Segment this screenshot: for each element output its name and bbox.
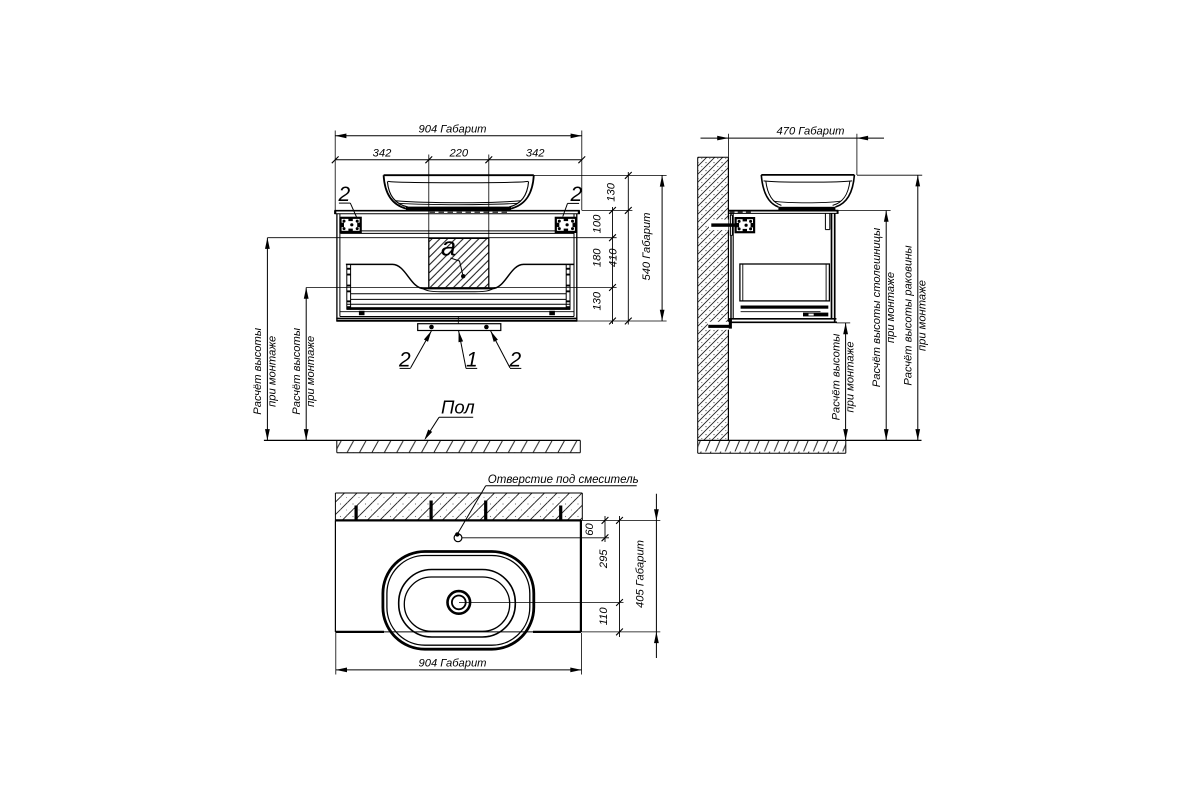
svg-text:Отверстие под смеситель: Отверстие под смеситель — [488, 474, 639, 486]
svg-text:904 Габарит: 904 Габарит — [419, 658, 487, 670]
svg-text:342: 342 — [373, 148, 392, 160]
svg-text:2: 2 — [509, 348, 522, 371]
svg-text:180: 180 — [592, 248, 604, 267]
svg-text:540 Габарит: 540 Габарит — [641, 213, 653, 281]
svg-text:904 Габарит: 904 Габарит — [419, 123, 487, 135]
svg-text:130: 130 — [592, 291, 604, 310]
svg-text:Расчёт высоты столешницы: Расчёт высоты столешницы — [871, 227, 883, 387]
svg-text:при монтаже: при монтаже — [917, 280, 929, 351]
svg-text:a: a — [441, 232, 456, 262]
svg-text:2: 2 — [337, 183, 350, 206]
svg-text:130: 130 — [605, 182, 617, 201]
svg-text:при монтаже: при монтаже — [266, 336, 278, 407]
svg-text:410: 410 — [607, 248, 619, 267]
svg-text:295: 295 — [598, 549, 610, 569]
svg-text:при монтаже: при монтаже — [885, 272, 897, 343]
svg-text:Расчёт высоты: Расчёт высоты — [830, 333, 842, 421]
svg-text:60: 60 — [584, 523, 596, 536]
svg-text:при монтаже: при монтаже — [845, 341, 857, 412]
svg-text:Расчёт высоты раковины: Расчёт высоты раковины — [903, 245, 915, 386]
svg-text:Расчёт высоты: Расчёт высоты — [252, 327, 264, 415]
svg-text:Расчёт высоты: Расчёт высоты — [291, 327, 303, 415]
svg-text:2: 2 — [398, 348, 411, 371]
svg-text:2: 2 — [570, 183, 583, 206]
svg-text:100: 100 — [592, 214, 604, 233]
svg-text:405 Габарит: 405 Габарит — [635, 540, 647, 608]
svg-text:220: 220 — [448, 148, 468, 160]
svg-text:Пол: Пол — [441, 397, 475, 418]
svg-text:при монтаже: при монтаже — [305, 336, 317, 407]
svg-text:110: 110 — [598, 607, 610, 626]
svg-text:470 Габарит: 470 Габарит — [777, 126, 845, 138]
svg-text:1: 1 — [466, 348, 478, 371]
svg-text:342: 342 — [526, 148, 545, 160]
